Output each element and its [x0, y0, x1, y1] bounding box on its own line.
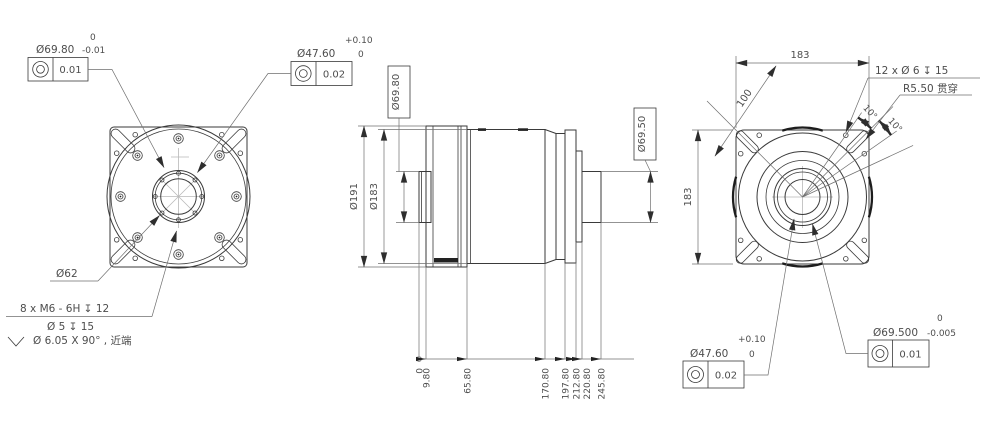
thread-note: 8 x M6 - 6H ↧ 12	[20, 303, 109, 315]
rear-fcf-pilot-tol-lower: -0.005	[927, 329, 956, 339]
side-view: Ø191 Ø183 Ø69.80 Ø69.50	[348, 66, 658, 400]
concentricity-icon	[872, 346, 888, 362]
rear-fcf-bore-dim: Ø47.60	[690, 348, 728, 360]
rear-slot-note: R5.50 贯穿	[903, 82, 958, 95]
fcf-pilot-dim: Ø69.80	[36, 44, 74, 56]
cad-drawing: 0.01 Ø69.80 0 -0.01 0.02 Ø47.60 +0.10 0 …	[0, 0, 983, 426]
rear-fcf-pilot-frame: 0.01 Ø69.500 0 -0.005	[813, 224, 957, 367]
ordinate-2: 65.80	[464, 368, 474, 394]
fcf-bore-value: 0.02	[323, 70, 345, 81]
fcf-pilot-frame: 0.01 Ø69.80 0 -0.01	[28, 33, 164, 168]
side-view-outline	[419, 126, 601, 267]
rear-view: 183 183 100 10° 10° 12 x Ø 6 ↧ 15	[683, 50, 980, 388]
outer-dia-label: Ø191	[348, 183, 360, 210]
side-dim-outer: Ø191	[348, 126, 426, 267]
fcf-pilot-tol-upper: 0	[90, 33, 96, 43]
bolt-circle-label: Ø62	[56, 268, 78, 280]
rear-dim-diagonal: 100	[707, 66, 803, 197]
fcf-bore-tol-lower: 0	[358, 50, 364, 60]
ordinate-7: 245.80	[598, 368, 608, 400]
concentricity-icon	[33, 62, 49, 78]
angle-a-label: 10°	[860, 103, 878, 122]
side-dim-body: Ø183	[368, 130, 467, 264]
rear-dim-width: 183	[736, 50, 869, 128]
ordinate-1: 9.80	[423, 368, 433, 388]
fcf-bore-tol-upper: +0.10	[345, 36, 373, 46]
front-pilot-label: Ø69.80	[390, 74, 402, 111]
ordinate-6: 220.80	[583, 368, 593, 400]
rear-fcf-bore-tol-upper: +0.10	[738, 335, 766, 345]
thread-callout: 8 x M6 - 6H ↧ 12 Ø 5 ↧ 15 Ø 6.05 X 90° ,…	[6, 231, 177, 347]
body-dia-label: Ø183	[368, 183, 380, 210]
side-dim-rear-pilot: Ø69.50	[601, 108, 658, 223]
rear-width-label: 183	[790, 50, 809, 61]
cad-drawing-page: 0.01 Ø69.80 0 -0.01 0.02 Ø47.60 +0.10 0 …	[0, 0, 983, 426]
fcf-bore-dim: Ø47.60	[297, 48, 335, 60]
rear-diagonal-label: 100	[735, 88, 755, 110]
side-dim-front-pilot: Ø69.80	[388, 66, 419, 223]
rear-hole-note: 12 x Ø 6 ↧ 15	[875, 65, 948, 77]
bolt-circle-callout: Ø62	[50, 216, 160, 282]
rear-pilot-label: Ø69.50	[636, 116, 648, 153]
concentricity-icon	[296, 66, 312, 82]
rear-hole-callout: 12 x Ø 6 ↧ 15	[846, 65, 980, 132]
csink-note: Ø 6.05 X 90° , 近端	[33, 334, 132, 347]
rear-fcf-pilot-value: 0.01	[899, 350, 921, 361]
rear-fcf-bore-value: 0.02	[715, 371, 737, 382]
fcf-pilot-tol-lower: -0.01	[82, 46, 105, 56]
rear-slot-callout: R5.50 贯穿	[866, 82, 972, 139]
fcf-pilot-value: 0.01	[59, 65, 81, 76]
side-ordinate-dims: 0 9.80 65.80 170.80 197.80 212.80 220.80…	[416, 223, 635, 400]
rear-height-label: 183	[683, 187, 694, 206]
rear-fcf-pilot-dim: Ø69.500	[873, 327, 918, 339]
rear-fcf-bore-frame: 0.02 Ø47.60 +0.10 0	[683, 219, 794, 388]
rear-dim-height: 183	[683, 130, 733, 264]
drill-note: Ø 5 ↧ 15	[47, 321, 94, 333]
countersink-icon	[8, 337, 24, 346]
ordinate-4: 197.80	[562, 368, 572, 400]
rear-fcf-bore-tol-lower: 0	[749, 350, 755, 360]
rear-fcf-pilot-tol-upper: 0	[937, 314, 943, 324]
ordinate-5: 212.80	[573, 368, 583, 400]
ordinate-3: 170.80	[542, 368, 552, 400]
rear-angle-dims: 10° 10°	[803, 103, 914, 197]
concentricity-icon	[688, 367, 704, 383]
front-view: 0.01 Ø69.80 0 -0.01 0.02 Ø47.60 +0.10 0 …	[6, 33, 373, 347]
